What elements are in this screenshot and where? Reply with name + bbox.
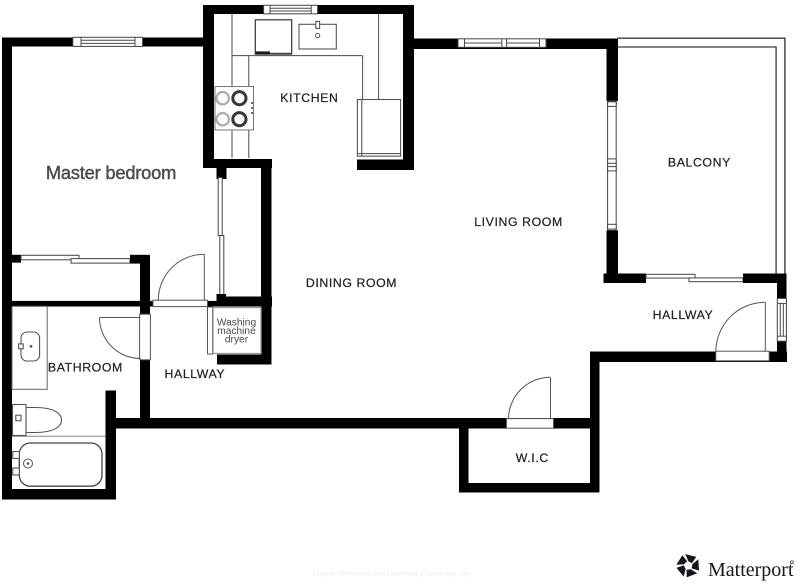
- svg-text:Master bedroom: Master bedroom: [46, 162, 176, 183]
- svg-text:dryer: dryer: [225, 334, 249, 345]
- svg-text:W.I.C: W.I.C: [516, 451, 549, 465]
- svg-text:DINING ROOM: DINING ROOM: [306, 276, 397, 290]
- svg-text:BALCONY: BALCONY: [668, 155, 731, 169]
- svg-text:Matterport: Matterport: [708, 559, 794, 581]
- svg-text:Diagram dimensions and positio: Diagram dimensions and positioning of it…: [313, 571, 471, 578]
- svg-text:KITCHEN: KITCHEN: [280, 91, 338, 105]
- svg-text:LIVING ROOM: LIVING ROOM: [474, 215, 563, 229]
- svg-text:HALLWAY: HALLWAY: [653, 308, 714, 322]
- svg-text:HALLWAY: HALLWAY: [165, 367, 226, 381]
- svg-text:BATHROOM: BATHROOM: [48, 361, 123, 375]
